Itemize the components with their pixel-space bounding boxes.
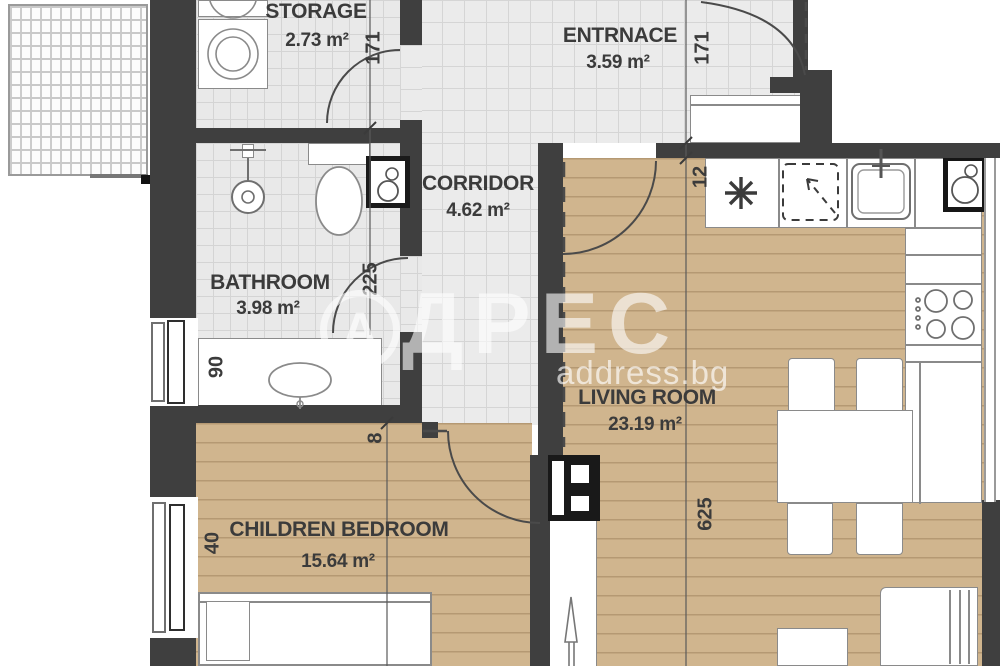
dim-label-kitchen-offset: 12	[690, 166, 713, 188]
washbasin-icon	[232, 181, 264, 213]
stove-icon	[916, 290, 974, 339]
room-area-bathroom: 3.98 m²	[236, 298, 299, 320]
washer-drum-partial	[209, 0, 257, 18]
dishwasher-icon	[725, 177, 757, 209]
room-label-bathroom: BATHROOM	[210, 271, 330, 295]
room-area-storage: 2.73 m²	[285, 30, 348, 52]
room-label-storage: STORAGE	[265, 0, 366, 24]
toilet-icon	[316, 167, 362, 235]
fridge-icon	[783, 164, 838, 220]
room-area-living-room: 23.19 m²	[608, 414, 682, 436]
dim-label-entrance-door: 171	[692, 31, 715, 64]
room-label-living-room: LIVING ROOM	[578, 386, 716, 410]
room-area-children-bedroom: 15.64 m²	[301, 551, 375, 573]
room-area-corridor: 4.62 m²	[446, 200, 509, 222]
dim-label-storage-door: 171	[363, 31, 386, 64]
boiler-icon	[952, 177, 978, 203]
plan-linework	[0, 0, 1000, 666]
dim-label-bathroom-window: 90	[206, 356, 229, 378]
room-label-corridor: CORRIDOR	[422, 172, 534, 196]
bathtub-oval	[269, 363, 331, 397]
floor-lamp-icon	[565, 597, 577, 666]
dim-label-living-length: 625	[695, 497, 718, 530]
floor-plan: STORAGE 2.73 m² ENTRNACE 3.59 m² CORRIDO…	[0, 0, 1000, 666]
bedroom-door-arc	[448, 431, 540, 523]
dim-label-bathroom-door: 225	[360, 262, 383, 295]
living-door-arc	[563, 161, 656, 254]
room-label-entrance: ENTRNACE	[563, 24, 677, 48]
room-label-children-bedroom: CHILDREN BEDROOM	[229, 518, 448, 542]
nook-basin-icon	[378, 181, 398, 201]
dim-label-wall-offset: 8	[365, 432, 388, 443]
room-area-entrance: 3.59 m²	[586, 52, 649, 74]
dim-label-bedroom-window: 40	[202, 532, 225, 554]
entrance-door-arc	[701, 2, 805, 75]
